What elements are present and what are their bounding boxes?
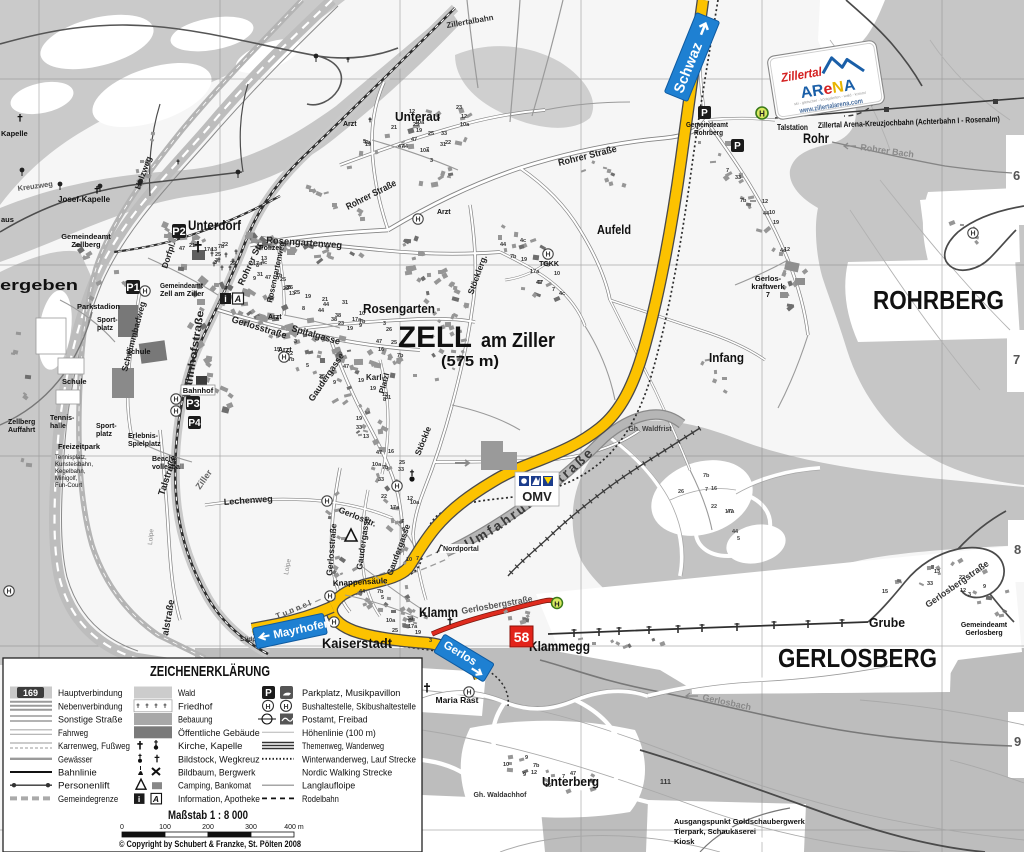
svg-text:23: 23 [456,105,462,111]
svg-text:7: 7 [416,556,419,562]
svg-text:H: H [281,355,286,362]
svg-text:Fahrweg: Fahrweg [58,728,88,739]
svg-text:33: 33 [398,467,404,473]
svg-text:Rohrberg: Rohrberg [694,128,723,137]
svg-text:H: H [554,600,559,609]
svg-text:22: 22 [283,286,289,292]
svg-text:8: 8 [1014,542,1021,557]
svg-text:H: H [173,397,178,404]
svg-text:H: H [394,484,399,491]
svg-text:Auffahrt: Auffahrt [8,427,36,434]
svg-text:47: 47 [376,339,382,345]
svg-text:ROHRBERG: ROHRBERG [873,285,1004,315]
svg-text:19: 19 [358,378,364,384]
svg-text:ZELL: ZELL [398,321,472,354]
svg-text:12: 12 [960,588,966,594]
svg-text:44: 44 [318,308,325,314]
svg-text:9: 9 [523,772,526,778]
svg-text:10: 10 [406,557,412,563]
svg-text:9: 9 [1014,734,1021,749]
svg-text:22: 22 [230,261,236,267]
svg-text:am Ziller: am Ziller [481,330,555,352]
svg-text:H: H [142,289,147,296]
svg-text:25: 25 [391,340,397,346]
svg-text:Parkplatz, Musikpavillon: Parkplatz, Musikpavillon [302,688,400,699]
svg-text:10: 10 [769,210,775,216]
svg-text:38: 38 [407,616,413,622]
svg-text:Grube: Grube [869,616,905,630]
svg-text:P4: P4 [188,418,201,429]
svg-text:Arzt: Arzt [268,314,282,321]
svg-text:ZEICHENERKLÄRUNG: ZEICHENERKLÄRUNG [150,663,270,680]
svg-text:P3: P3 [186,398,199,410]
svg-text:i: i [138,794,140,804]
svg-text:Loipe: Loipe [147,528,155,545]
svg-text:Höhenlinie (100 m): Höhenlinie (100 m) [302,728,376,739]
svg-text:Gemeindeamt: Gemeindeamt [961,622,1008,629]
svg-text:12: 12 [531,770,537,776]
svg-text:17a: 17a [530,269,540,275]
svg-text:i: i [224,294,227,304]
svg-text:Kiosk: Kiosk [674,837,695,846]
svg-text:Tierpark, Schaukäserei: Tierpark, Schaukäserei [674,827,756,836]
svg-text:47: 47 [343,364,349,370]
svg-text:26: 26 [678,489,684,495]
svg-text:19: 19 [416,128,422,134]
svg-text:400 m: 400 m [284,824,304,831]
svg-text:111: 111 [660,779,671,786]
svg-text:7b: 7b [510,254,517,260]
svg-text:33: 33 [735,175,741,181]
svg-text:6: 6 [1013,168,1020,183]
svg-text:25: 25 [428,131,434,137]
svg-text:44: 44 [323,302,330,308]
svg-text:Josef-Kapelle: Josef-Kapelle [58,195,111,204]
svg-text:Kaiserstadt: Kaiserstadt [322,636,392,651]
svg-text:Arzt: Arzt [278,347,292,354]
svg-text:47: 47 [411,137,417,143]
svg-text:44: 44 [763,211,770,217]
svg-text:22: 22 [445,140,451,146]
svg-text:© Copyright by Schubert & Fran: © Copyright by Schubert & Franzke, St. P… [119,839,301,850]
svg-text:25: 25 [294,290,300,296]
svg-text:44: 44 [359,589,366,595]
svg-text:21: 21 [391,125,397,131]
svg-text:19: 19 [773,220,779,226]
svg-text:Rosengarten: Rosengarten [363,301,435,316]
svg-text:Maßstab 1 : 8 000: Maßstab 1 : 8 000 [168,808,248,822]
svg-text:44: 44 [500,242,507,248]
svg-text:33: 33 [356,425,362,431]
svg-text:58: 58 [514,629,530,645]
svg-text:12: 12 [762,199,768,205]
svg-text:H: H [415,217,420,224]
svg-text:Polizei: Polizei [259,245,281,252]
svg-text:3: 3 [968,592,971,598]
svg-text:Bebauung: Bebauung [178,715,212,726]
svg-text:Postamt, Freibad: Postamt, Freibad [302,715,368,726]
svg-text:Freizeitpark: Freizeitpark [58,442,101,451]
svg-text:10a: 10a [386,618,396,624]
svg-text:10a: 10a [420,148,430,154]
svg-text:100: 100 [159,824,171,831]
svg-text:Arzt: Arzt [343,121,357,128]
svg-text:Friedhof: Friedhof [178,701,213,712]
svg-text:Beach-: Beach- [152,456,176,463]
svg-text:H: H [265,704,270,711]
svg-text:0: 0 [120,824,124,831]
svg-text:Personenlift: Personenlift [58,781,110,792]
svg-text:4c: 4c [520,238,526,244]
svg-text:volleyball: volleyball [152,464,184,471]
svg-text:Infang: Infang [709,350,744,365]
svg-text:7b: 7b [533,763,540,769]
svg-text:P2: P2 [172,226,185,238]
svg-text:31: 31 [257,272,263,278]
svg-text:platz: platz [96,431,112,438]
svg-text:Maria Rast: Maria Rast [436,695,479,705]
svg-text:3: 3 [294,339,297,345]
svg-text:38: 38 [335,313,341,319]
svg-text:Öffentliche Gebäude: Öffentliche Gebäude [178,728,260,739]
svg-text:Gh. Waldfrist: Gh. Waldfrist [628,426,672,433]
svg-text:H: H [331,620,336,627]
svg-text:19: 19 [305,294,311,300]
svg-text:Tennisplatz,: Tennisplatz, [55,455,87,461]
svg-text:9: 9 [359,323,362,329]
svg-text:A: A [234,294,242,304]
svg-text:10a: 10a [460,122,470,128]
svg-text:Gewässer: Gewässer [58,754,92,765]
svg-text:Hauptverbindung: Hauptverbindung [58,688,123,699]
svg-text:Aufeld: Aufeld [597,222,631,237]
svg-text:Gemeindegrenze: Gemeindegrenze [58,794,118,805]
svg-text:17a: 17a [725,509,735,515]
svg-text:Rohr: Rohr [803,130,829,146]
svg-text:10: 10 [503,762,509,768]
svg-text:5: 5 [737,536,740,542]
svg-text:Unterau: Unterau [395,109,440,124]
svg-text:P1: P1 [126,282,139,294]
svg-text:P: P [701,108,708,119]
svg-text:3: 3 [383,321,386,327]
svg-text:Gerlosberg: Gerlosberg [965,630,1002,637]
svg-text:17a: 17a [408,624,418,630]
svg-text:9: 9 [333,380,336,386]
svg-text:22: 22 [711,504,717,510]
svg-text:Talstation: Talstation [777,122,808,132]
svg-text:19: 19 [347,326,353,332]
svg-text:Karrenweg, Fußweg: Karrenweg, Fußweg [58,741,130,752]
svg-text:5: 5 [363,139,366,145]
svg-text:17a: 17a [204,247,214,253]
svg-text:TGKK: TGKK [539,261,559,268]
svg-text:22: 22 [222,242,228,248]
svg-text:Langlaufloipe: Langlaufloipe [302,781,355,792]
svg-text:Zell am Ziller: Zell am Ziller [160,289,204,298]
svg-text:Schule: Schule [62,377,87,386]
svg-text:Kegelbahn,: Kegelbahn, [55,469,86,475]
svg-text:Zellberg: Zellberg [8,419,35,426]
svg-text:9: 9 [253,276,256,282]
svg-text:H: H [970,231,975,238]
svg-text:Kunsteisbahn,: Kunsteisbahn, [55,462,93,468]
svg-text:9: 9 [983,584,986,590]
svg-text:16: 16 [711,486,717,492]
svg-text:12: 12 [461,114,467,120]
svg-text:25: 25 [399,460,405,466]
svg-text:Minigolf,: Minigolf, [55,476,78,482]
svg-text:H: H [283,704,288,711]
svg-text:Kirche, Kapelle: Kirche, Kapelle [178,741,243,752]
svg-text:10a: 10a [372,462,382,468]
svg-text:Erlebnis-: Erlebnis- [128,433,159,440]
svg-text:19: 19 [370,386,376,392]
svg-text:5: 5 [381,595,384,601]
svg-text:47: 47 [536,280,542,286]
svg-text:16: 16 [388,449,394,455]
svg-text:7: 7 [552,287,555,293]
svg-text:Tennis-: Tennis- [50,415,75,422]
svg-text:H: H [6,589,11,596]
svg-text:Sport-: Sport- [97,317,118,324]
svg-text:Bildbaum, Bergwerk: Bildbaum, Bergwerk [178,768,256,779]
svg-text:Arzt: Arzt [437,209,451,216]
svg-text:23: 23 [338,321,344,327]
svg-text:A: A [152,794,159,804]
svg-text:44: 44 [732,529,739,535]
svg-text:GERLOSBERG: GERLOSBERG [778,643,937,673]
svg-text:Bahnlinie: Bahnlinie [58,768,97,779]
svg-text:Rodelbahn: Rodelbahn [302,794,339,805]
svg-text:kraftwerk: kraftwerk [751,282,785,291]
svg-text:13: 13 [363,434,369,440]
svg-text:Camping, Bankomat: Camping, Bankomat [178,781,251,792]
svg-text:31: 31 [385,395,391,401]
svg-text:Bahnhof: Bahnhof [183,386,214,395]
svg-text:Spielplatz: Spielplatz [128,441,161,448]
svg-text:33: 33 [927,581,933,587]
svg-text:P: P [734,141,741,152]
svg-text:H: H [173,409,178,416]
svg-text:halle: halle [50,423,66,430]
svg-text:(575 m): (575 m) [441,353,499,370]
svg-text:Unterberg: Unterberg [542,775,599,789]
svg-text:44: 44 [402,144,409,150]
svg-text:25: 25 [392,628,398,634]
svg-text:31: 31 [342,300,348,306]
svg-text:7b: 7b [703,473,710,479]
svg-text:7: 7 [726,168,729,174]
svg-text:47: 47 [376,450,382,456]
svg-text:Sonstige Straße: Sonstige Straße [58,715,123,726]
svg-text:Gh. Waldachhof: Gh. Waldachhof [473,792,527,799]
svg-text:7b: 7b [382,465,389,471]
svg-text:17a: 17a [390,505,400,511]
svg-text:47: 47 [179,246,185,252]
svg-text:7: 7 [766,292,770,299]
svg-text:Wald: Wald [178,688,195,699]
svg-text:19: 19 [415,630,421,636]
svg-text:19: 19 [356,416,362,422]
svg-text:10: 10 [554,271,560,277]
svg-text:13: 13 [261,256,267,262]
svg-text:15: 15 [882,589,888,595]
svg-text:7b: 7b [740,198,747,204]
svg-text:ergeben: ergeben [0,278,78,294]
svg-text:7: 7 [1013,352,1020,367]
svg-text:Kapelle: Kapelle [1,129,28,138]
svg-text:12: 12 [407,496,413,502]
svg-text:3: 3 [429,638,432,644]
svg-text:8: 8 [302,306,305,312]
svg-text:22: 22 [381,494,387,500]
svg-text:9: 9 [525,755,528,761]
svg-text:Nebenverbindung: Nebenverbindung [58,701,123,712]
svg-text:16: 16 [378,347,384,353]
svg-text:300: 300 [245,824,257,831]
svg-text:Klammegg: Klammegg [529,639,590,654]
svg-text:Information, Apotheke: Information, Apotheke [178,794,260,805]
svg-text:7: 7 [705,487,708,493]
svg-text:Zellberg: Zellberg [71,240,101,249]
svg-text:21: 21 [189,243,195,249]
svg-text:Bildstock, Wegkreuz: Bildstock, Wegkreuz [178,754,260,765]
svg-text:H: H [759,110,765,119]
svg-text:Nordportal: Nordportal [443,546,479,553]
svg-text:3: 3 [214,260,217,266]
svg-text:Schule: Schule [126,347,151,356]
svg-text:H: H [327,594,332,601]
svg-text:3: 3 [430,158,433,164]
svg-text:200: 200 [202,824,214,831]
svg-text:33: 33 [441,131,447,137]
svg-text:Ausgangspunkt Goldschaubergwer: Ausgangspunkt Goldschaubergwerk [674,817,806,826]
svg-text:8: 8 [256,263,259,269]
svg-text:Klamm: Klamm [419,605,458,620]
svg-text:19: 19 [521,257,527,263]
svg-text:Nordic Walking Strecke: Nordic Walking Strecke [302,768,392,779]
svg-text:H: H [545,252,550,259]
svg-text:Bushaltestelle, Skibushalteste: Bushaltestelle, Skibushaltestelle [302,701,416,712]
svg-text:platz: platz [97,325,113,332]
svg-text:H: H [324,499,329,506]
svg-text:Parkstadion: Parkstadion [77,302,120,311]
svg-text:5: 5 [306,363,309,369]
svg-text:Themenweg, Wanderweg: Themenweg, Wanderweg [302,741,384,752]
svg-text:Winterwanderweg, Lauf Strecke: Winterwanderweg, Lauf Strecke [302,754,416,765]
svg-text:Sport-: Sport- [96,423,117,430]
svg-text:4c: 4c [559,291,565,297]
svg-text:OMV: OMV [522,489,552,504]
svg-text:Unterdorf: Unterdorf [188,217,241,233]
svg-text:P: P [265,688,272,699]
svg-text:Fun-Court: Fun-Court [55,483,82,489]
svg-text:26: 26 [386,327,392,333]
svg-text:aus: aus [1,215,14,224]
svg-text:169: 169 [23,688,38,698]
svg-text:33: 33 [378,477,384,483]
svg-text:13: 13 [934,569,940,575]
svg-text:12: 12 [784,247,790,253]
